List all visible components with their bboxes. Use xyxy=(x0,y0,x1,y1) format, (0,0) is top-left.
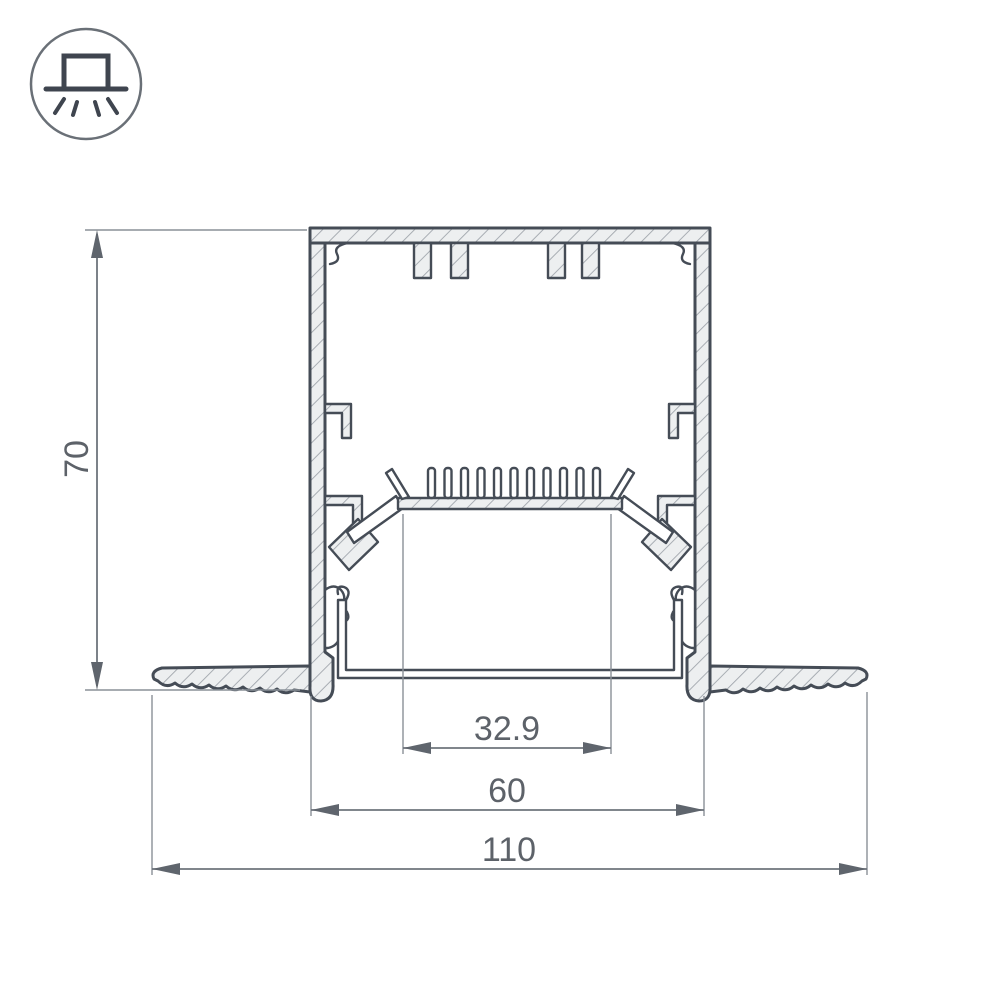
profile-body xyxy=(153,228,867,701)
recessed-mount-light-icon xyxy=(31,29,141,139)
dim-height: 70 xyxy=(58,230,307,690)
top-wall xyxy=(310,228,710,243)
left-flange xyxy=(153,666,310,693)
dim-height-label: 70 xyxy=(58,440,96,478)
right-corner-curl xyxy=(672,243,690,264)
right-flange xyxy=(710,666,867,693)
icon-circle xyxy=(31,29,141,139)
dim-inner-window: 32.9 xyxy=(403,514,611,754)
diffuser xyxy=(338,600,682,678)
dim-body-width-label: 60 xyxy=(488,772,526,810)
right-upper-hook xyxy=(669,404,695,438)
icon-light-rays xyxy=(55,99,117,115)
left-corner-curl xyxy=(330,243,348,264)
dim-overall-width-label: 110 xyxy=(482,831,536,869)
heatsink-fins xyxy=(386,468,634,499)
profile-cross-section-drawing: 70 32.9 60 110 xyxy=(0,0,1000,1000)
heatsink xyxy=(386,468,634,509)
icon-fixture-box xyxy=(64,56,108,89)
dim-inner-window-label: 32.9 xyxy=(474,710,540,748)
screw-bosses xyxy=(414,243,599,278)
left-upper-hook xyxy=(325,404,351,438)
technical-drawing-page: 70 32.9 60 110 xyxy=(0,0,1000,1000)
